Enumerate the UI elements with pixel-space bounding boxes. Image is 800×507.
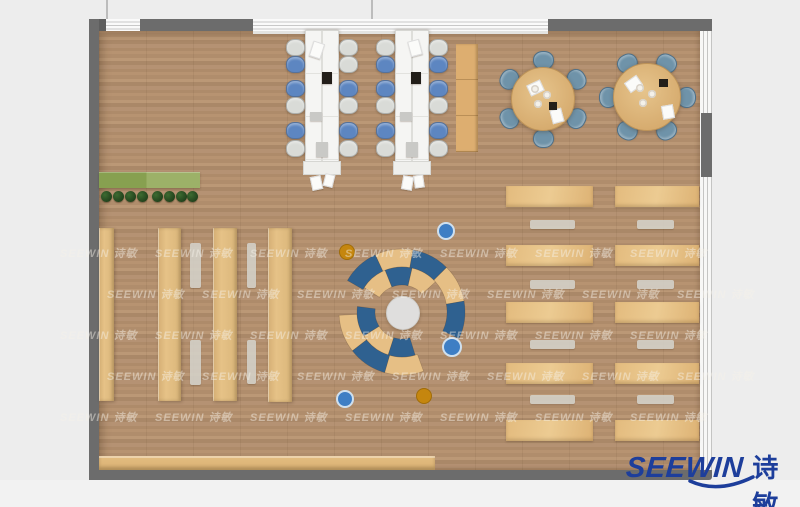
chair (376, 97, 395, 114)
chair (286, 97, 305, 114)
desk-row (506, 302, 593, 323)
round-table-chair (533, 129, 554, 148)
plant (125, 191, 136, 202)
floor-watermark: SEEWIN 诗敏 (107, 368, 184, 384)
floor-watermark: SEEWIN 诗敏 (155, 327, 232, 343)
plant (137, 191, 148, 202)
exterior-wall-line (371, 0, 373, 19)
table-item (411, 72, 421, 84)
chair (376, 140, 395, 157)
chair (286, 122, 305, 139)
round-table (511, 67, 575, 131)
floor-watermark: SEEWIN 诗敏 (250, 245, 327, 261)
plant (152, 191, 163, 202)
bench-row (530, 220, 575, 229)
floor-watermark: SEEWIN 诗敏 (487, 368, 564, 384)
long-table-end (393, 161, 431, 175)
round-table (613, 63, 681, 131)
floor-watermark: SEEWIN 诗敏 (297, 286, 374, 302)
chair (429, 140, 448, 157)
chair (339, 39, 358, 56)
floor-watermark: SEEWIN 诗敏 (535, 245, 612, 261)
table-item (322, 72, 332, 84)
bench-row (637, 220, 674, 229)
top-wall-segment (140, 19, 253, 31)
floor-watermark: SEEWIN 诗敏 (60, 327, 137, 343)
desk-row (615, 186, 699, 207)
floor-watermark: SEEWIN 诗敏 (630, 327, 707, 343)
floor-watermark: SEEWIN 诗敏 (487, 286, 564, 302)
chair (339, 97, 358, 114)
plate (636, 84, 644, 92)
chair (376, 39, 395, 56)
bench-row (530, 395, 575, 404)
plate (543, 91, 551, 99)
floor-watermark: SEEWIN 诗敏 (250, 409, 327, 425)
chair (286, 140, 305, 157)
logo-text-en: SEEWIN (625, 452, 745, 485)
chair (339, 140, 358, 157)
floor-watermark: SEEWIN 诗敏 (202, 286, 279, 302)
chair (429, 39, 448, 56)
floor-watermark: SEEWIN 诗敏 (630, 409, 707, 425)
plate (639, 99, 647, 107)
chair (376, 122, 395, 139)
table-item (400, 112, 412, 121)
chair (376, 56, 395, 73)
floor-plan: SEEWIN 诗敏SEEWIN 诗敏SEEWIN 诗敏SEEWIN 诗敏SEEW… (0, 0, 800, 507)
floor-watermark: SEEWIN 诗敏 (535, 327, 612, 343)
desk-row (615, 302, 699, 323)
plate (531, 85, 539, 93)
table-item (310, 112, 322, 121)
chair (339, 56, 358, 73)
plant (113, 191, 124, 202)
service-counter (99, 456, 435, 470)
floor-watermark: SEEWIN 诗敏 (440, 409, 517, 425)
floor-watermark: SEEWIN 诗敏 (440, 327, 517, 343)
plate (648, 90, 656, 98)
floor-watermark: SEEWIN 诗敏 (345, 327, 422, 343)
table-item (316, 142, 328, 157)
chair (339, 122, 358, 139)
table-item (413, 174, 425, 188)
floor-watermark: SEEWIN 诗敏 (155, 245, 232, 261)
floor-watermark: SEEWIN 诗敏 (202, 368, 279, 384)
plant (176, 191, 187, 202)
chair (286, 80, 305, 97)
plant (101, 191, 112, 202)
floor-watermark: SEEWIN 诗敏 (582, 286, 659, 302)
floor-watermark: SEEWIN 诗敏 (60, 409, 137, 425)
long-table-end (303, 161, 341, 175)
floor-watermark: SEEWIN 诗敏 (677, 286, 754, 302)
floor-plan-canvas: SEEWIN 诗敏SEEWIN 诗敏SEEWIN 诗敏SEEWIN 诗敏SEEW… (0, 0, 800, 507)
floor-watermark: SEEWIN 诗敏 (60, 245, 137, 261)
top-wall-segment (548, 19, 712, 31)
floor-watermark: SEEWIN 诗敏 (440, 245, 517, 261)
desk-row (506, 186, 593, 207)
floor-watermark: SEEWIN 诗敏 (392, 368, 469, 384)
chair (286, 56, 305, 73)
floor-watermark: SEEWIN 诗敏 (250, 327, 327, 343)
floor-watermark: SEEWIN 诗敏 (677, 368, 754, 384)
chair (339, 80, 358, 97)
table-item (406, 142, 418, 157)
bench (190, 340, 201, 385)
floor-watermark: SEEWIN 诗敏 (345, 245, 422, 261)
ottoman-amber (416, 388, 432, 404)
plant (187, 191, 198, 202)
wall-cabinet (456, 44, 478, 152)
floor-watermark: SEEWIN 诗敏 (155, 409, 232, 425)
chair (429, 122, 448, 139)
table-item (659, 79, 668, 87)
chair (286, 39, 305, 56)
chair (376, 80, 395, 97)
floor-watermark: SEEWIN 诗敏 (107, 286, 184, 302)
exterior-wall-line (106, 0, 108, 19)
table-item (661, 104, 675, 120)
table-item (549, 102, 557, 110)
chair (429, 56, 448, 73)
bench-row (637, 395, 674, 404)
floor-watermark: SEEWIN 诗敏 (297, 368, 374, 384)
plant (164, 191, 175, 202)
ottoman-blue (437, 222, 455, 240)
ottoman-blue (336, 390, 354, 408)
floor-watermark: SEEWIN 诗敏 (582, 368, 659, 384)
brand-logo: SEEWIN 诗敏 (626, 448, 800, 507)
floor-watermark: SEEWIN 诗敏 (630, 245, 707, 261)
chair (429, 97, 448, 114)
bottom-wall (89, 470, 712, 480)
floor-watermark: SEEWIN 诗敏 (392, 286, 469, 302)
floor-watermark: SEEWIN 诗敏 (535, 409, 612, 425)
right-wall-segment (701, 113, 712, 177)
chair (429, 80, 448, 97)
planter-box (99, 172, 200, 188)
logo-text-cn: 诗敏 (752, 448, 800, 507)
floor-watermark: SEEWIN 诗敏 (345, 409, 422, 425)
plate (534, 100, 542, 108)
